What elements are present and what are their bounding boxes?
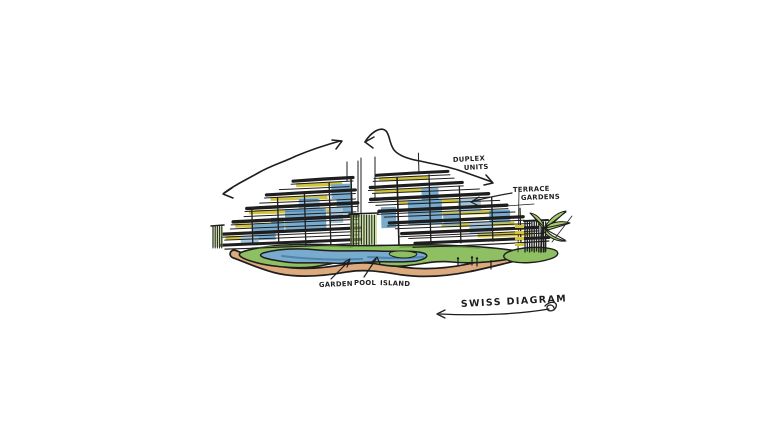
title-underline-arrow [440,309,549,315]
architectural-sketch-canvas: DUPLEX UNITS TERRACE GARDENS GARDEN POOL… [0,0,780,439]
annotation-title: SWISS DIAGRAM [437,293,567,318]
duplex-units-label-line2: UNITS [464,163,489,172]
left-louver-screen [211,225,224,248]
left-building-cluster [219,177,361,249]
annotation-island: ISLAND [380,279,410,288]
pool-label: POOL [354,279,376,287]
island-label: ISLAND [380,279,410,288]
antenna-line [418,153,419,173]
terrace-gardens-label-line2: GARDENS [521,193,560,202]
sketch-page: DUPLEX UNITS TERRACE GARDENS GARDEN POOL… [0,0,780,439]
garden-label: GARDEN [319,280,353,289]
pool-island [389,251,417,258]
